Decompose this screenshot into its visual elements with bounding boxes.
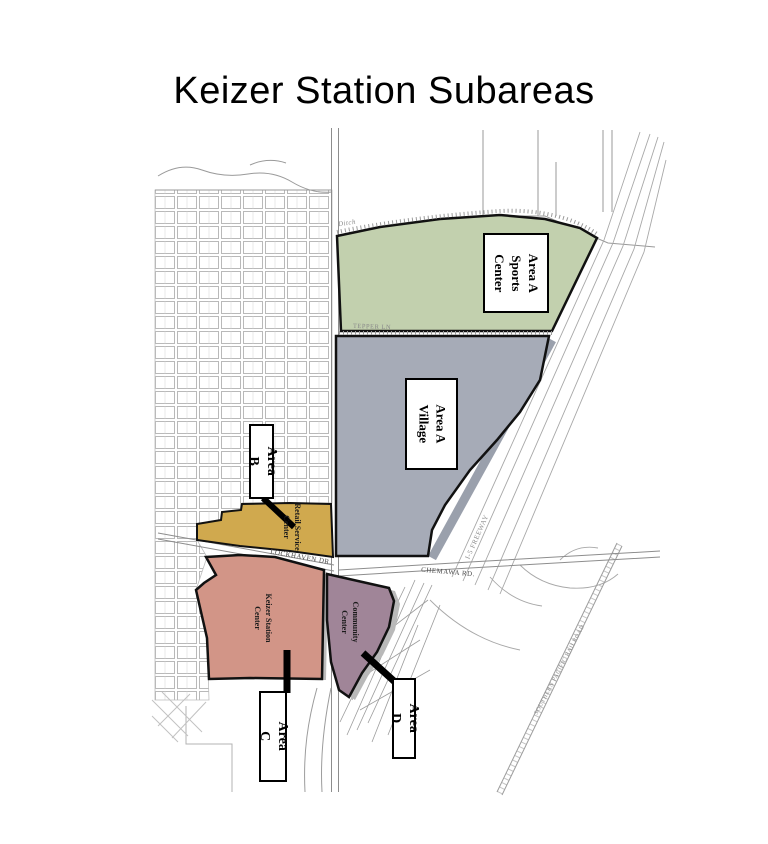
page-title: Keizer Station Subareas (0, 70, 768, 113)
area-a-sports-polygon (337, 215, 597, 331)
area-a-village-label-box: Area A Village (405, 378, 458, 470)
map-canvas (0, 0, 768, 844)
area-b-label: Area B (243, 447, 279, 476)
area-c-label-box: Area C (259, 691, 287, 782)
area-a-sports-label-box: Area A Sports Center (483, 233, 549, 313)
retail-service-center-label: Retail Service Center (280, 503, 302, 550)
area-c-label: Area C (255, 722, 291, 751)
creek-line (158, 160, 332, 192)
area-b-label-box: Area B (249, 424, 274, 499)
south-roads (152, 688, 331, 792)
keizer-station-center-label: Keizer Station Center (251, 594, 273, 643)
area-d-label: Area D (386, 704, 422, 733)
tepper-ln-label: TEPPER LN (353, 323, 392, 331)
area-a-village-label: Area A Village (415, 404, 449, 443)
community-center-label: Community Center (338, 602, 360, 643)
area-a-sports-label: Area A Sports Center (491, 253, 542, 292)
area-d-label-box: Area D (392, 678, 416, 759)
map-page: Keizer Station Subareas Area A Sports Ce… (0, 0, 768, 844)
